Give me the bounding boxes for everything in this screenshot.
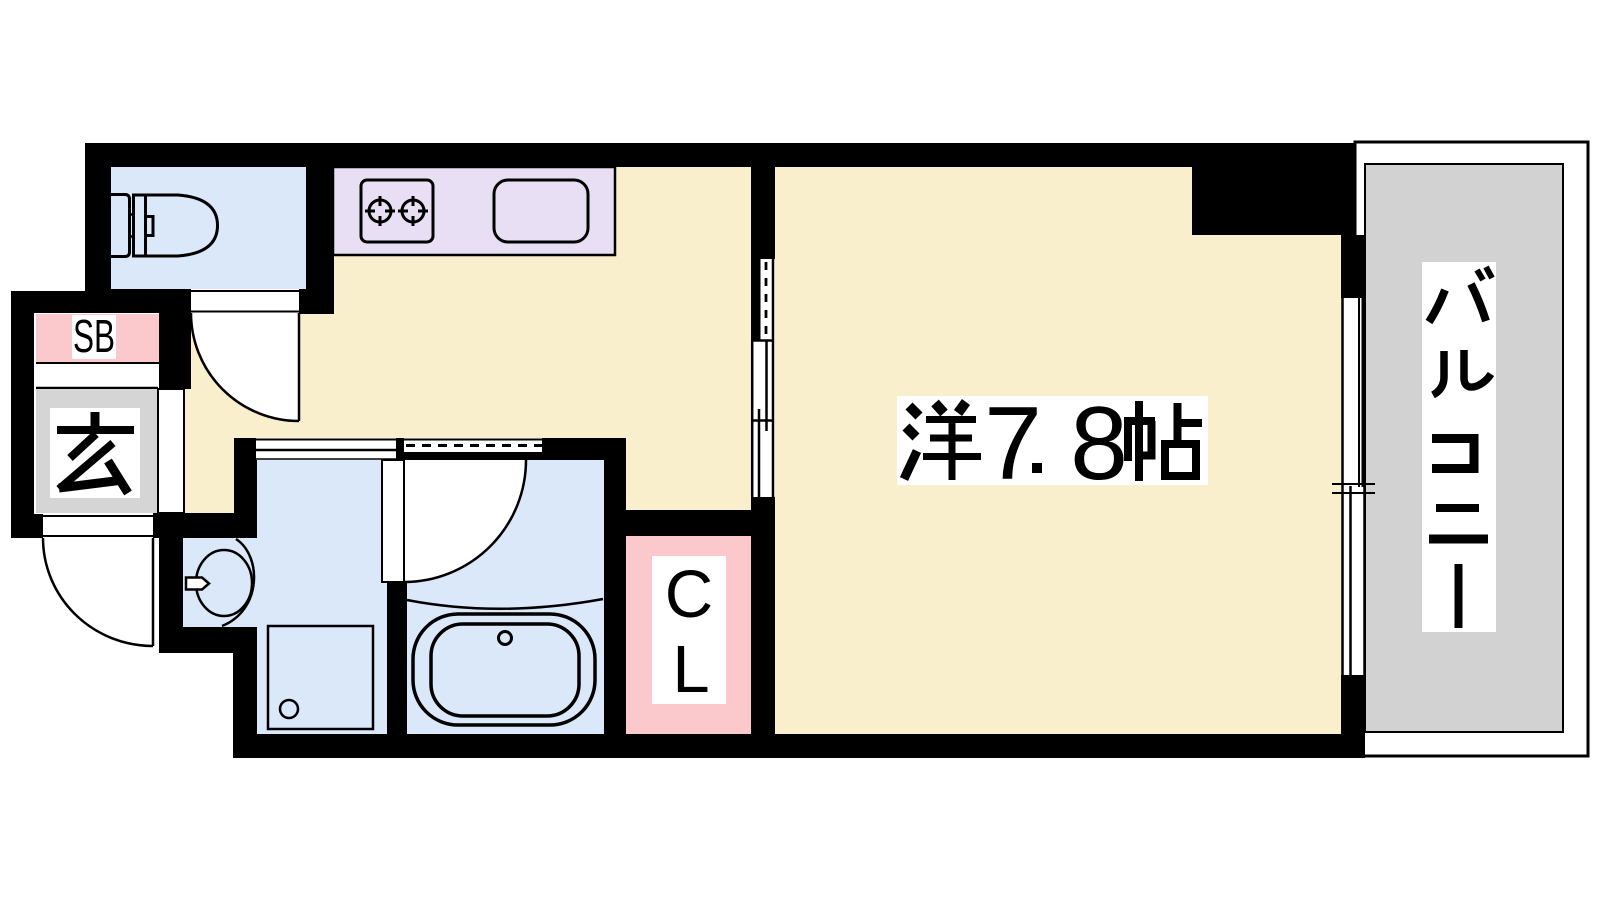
svg-text:L: L xyxy=(672,632,709,707)
svg-text:C: C xyxy=(665,557,713,632)
svg-text:8: 8 xyxy=(1070,386,1128,502)
svg-text:7: 7 xyxy=(984,386,1042,502)
svg-text:SB: SB xyxy=(73,310,115,362)
